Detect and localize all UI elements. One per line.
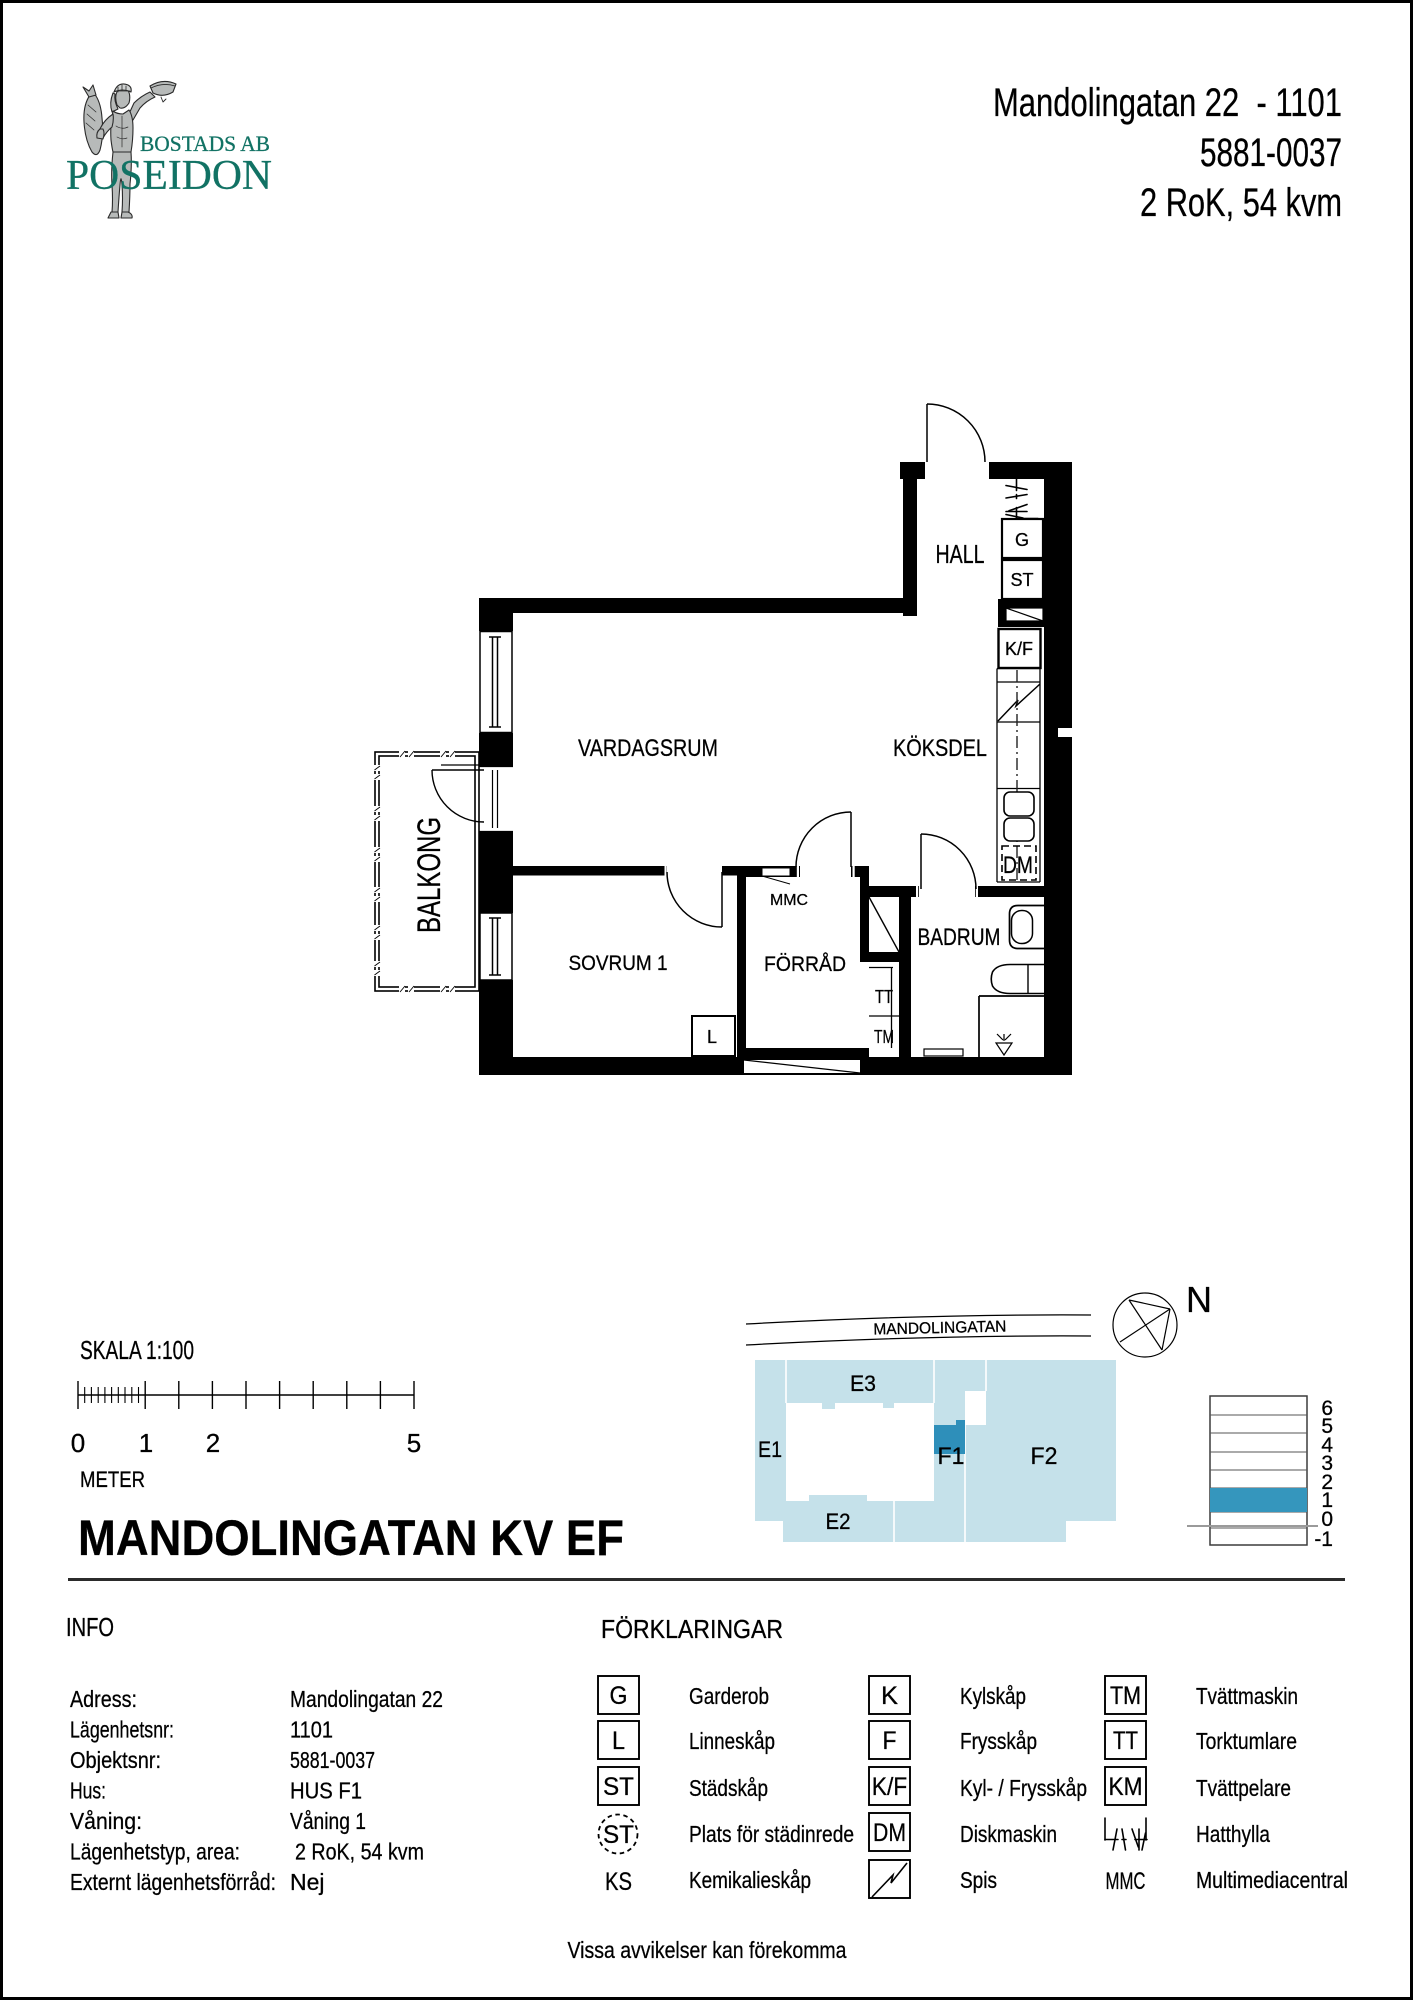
svg-text:G: G [1015, 530, 1029, 550]
svg-text:Kemikalieskåp: Kemikalieskåp [689, 1867, 811, 1893]
svg-text:2: 2 [206, 1428, 220, 1458]
svg-text:VARDAGSRUM: VARDAGSRUM [578, 735, 718, 762]
svg-text:Multimediacentral: Multimediacentral [1196, 1867, 1348, 1893]
svg-text:Våning 1: Våning 1 [290, 1808, 366, 1834]
svg-text:Hatthylla: Hatthylla [1196, 1821, 1270, 1847]
svg-text:INFO: INFO [66, 1612, 114, 1642]
svg-text:Lägenhetstyp, area:: Lägenhetstyp, area: [70, 1839, 240, 1865]
svg-text:Mandolingatan 22: Mandolingatan 22 [290, 1686, 443, 1712]
svg-text:Torktumlare: Torktumlare [1196, 1728, 1297, 1754]
svg-text:5881-0037: 5881-0037 [290, 1747, 375, 1773]
svg-text:ST: ST [603, 1821, 634, 1849]
svg-text:F2: F2 [1031, 1443, 1058, 1470]
svg-text:TT: TT [875, 987, 893, 1007]
svg-text:Plats för städinrede: Plats för städinrede [689, 1821, 854, 1847]
svg-text:KS: KS [605, 1868, 632, 1896]
svg-text:MMC: MMC [770, 892, 808, 909]
svg-text:K/F: K/F [1005, 639, 1033, 659]
svg-text:Lägenhetsnr:: Lägenhetsnr: [70, 1717, 174, 1743]
svg-text:Kylskåp: Kylskåp [960, 1683, 1026, 1709]
svg-text:2 RoK, 54 kvm: 2 RoK, 54 kvm [295, 1839, 424, 1865]
svg-text:-1: -1 [1314, 1528, 1333, 1551]
svg-text:K/F: K/F [872, 1773, 908, 1801]
svg-text:TM: TM [1110, 1682, 1141, 1710]
svg-text:FÖRRÅD: FÖRRÅD [764, 953, 846, 976]
svg-text:Nej: Nej [290, 1869, 325, 1895]
svg-text:ST: ST [1010, 570, 1033, 590]
svg-text:2 RoK, 54 kvm: 2 RoK, 54 kvm [1140, 181, 1342, 225]
svg-text:FÖRKLARINGAR: FÖRKLARINGAR [601, 1614, 783, 1644]
svg-text:TM: TM [874, 1027, 894, 1047]
svg-text:DM: DM [1003, 852, 1033, 879]
svg-text:Tvättpelare: Tvättpelare [1196, 1775, 1291, 1801]
svg-text:1101: 1101 [290, 1717, 333, 1743]
svg-text:L: L [612, 1727, 625, 1755]
svg-text:Våning:: Våning: [70, 1808, 142, 1834]
svg-text:E1: E1 [758, 1437, 782, 1462]
svg-text:L: L [707, 1027, 717, 1047]
svg-text:Diskmaskin: Diskmaskin [960, 1821, 1057, 1847]
svg-text:Adress:: Adress: [70, 1686, 137, 1712]
svg-text:Hus:: Hus: [70, 1778, 106, 1804]
svg-text:SOVRUM 1: SOVRUM 1 [569, 952, 668, 975]
svg-text:KM: KM [1109, 1773, 1143, 1801]
svg-text:BALKONG: BALKONG [411, 817, 447, 933]
svg-text:HALL: HALL [936, 539, 985, 569]
svg-text:DM: DM [873, 1819, 906, 1847]
svg-text:KÖKSDEL: KÖKSDEL [893, 735, 987, 762]
svg-text:Kyl- / Frysskåp: Kyl- / Frysskåp [960, 1775, 1087, 1801]
svg-text:BADRUM: BADRUM [918, 924, 1001, 951]
svg-text:POSEIDON: POSEIDON [66, 153, 272, 199]
svg-text:F: F [883, 1727, 897, 1755]
svg-text:SKALA 1:100: SKALA 1:100 [80, 1335, 194, 1365]
svg-text:E2: E2 [826, 1509, 851, 1534]
svg-text:Mandolingatan 22 - 1101: Mandolingatan 22 - 1101 [993, 81, 1342, 125]
svg-text:0: 0 [71, 1428, 85, 1458]
svg-text:1: 1 [139, 1428, 153, 1458]
svg-text:METER: METER [80, 1467, 145, 1492]
svg-text:F1: F1 [938, 1443, 965, 1470]
svg-text:N: N [1186, 1279, 1212, 1320]
svg-text:Frysskåp: Frysskåp [960, 1728, 1037, 1754]
svg-text:Externt lägenhetsförråd:: Externt lägenhetsförråd: [70, 1869, 276, 1895]
svg-text:E3: E3 [850, 1371, 876, 1396]
svg-text:Städskåp: Städskåp [689, 1775, 768, 1801]
svg-text:Linneskåp: Linneskåp [689, 1728, 775, 1754]
svg-text:5881-0037: 5881-0037 [1200, 131, 1342, 175]
svg-text:5: 5 [407, 1428, 421, 1458]
svg-text:Spis: Spis [960, 1867, 997, 1893]
svg-text:MANDOLINGATAN KV EF: MANDOLINGATAN KV EF [78, 1510, 624, 1566]
svg-text:Vissa avvikelser kan förekomma: Vissa avvikelser kan förekomma [568, 1937, 847, 1963]
svg-text:Objektsnr:: Objektsnr: [70, 1747, 161, 1773]
svg-text:Garderob: Garderob [689, 1683, 769, 1709]
svg-text:MANDOLINGATAN: MANDOLINGATAN [873, 1318, 1006, 1338]
svg-text:MMC: MMC [1106, 1868, 1146, 1895]
svg-text:K: K [881, 1682, 898, 1710]
svg-text:Tvättmaskin: Tvättmaskin [1196, 1683, 1298, 1709]
svg-text:HUS F1: HUS F1 [290, 1778, 362, 1804]
svg-text:TT: TT [1113, 1727, 1138, 1755]
svg-text:G: G [610, 1682, 628, 1710]
svg-text:ST: ST [603, 1773, 634, 1801]
